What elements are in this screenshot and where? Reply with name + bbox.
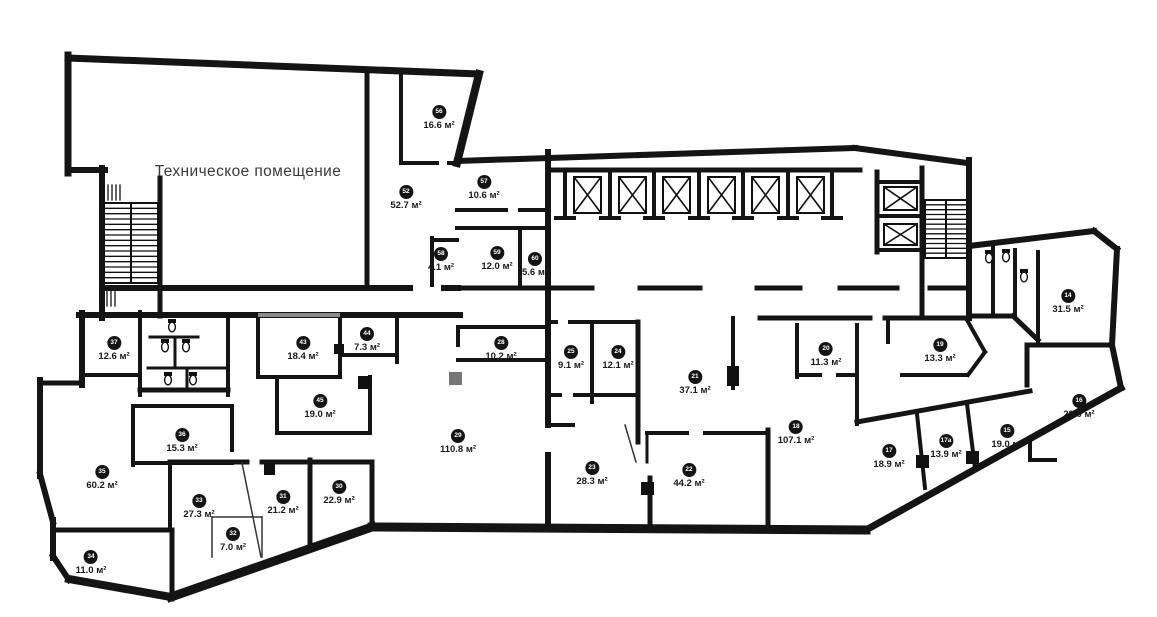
room-marker-29[interactable]: 29 110.8 м² — [440, 429, 476, 455]
room-number: 35 — [95, 465, 109, 479]
room-area: 13.9 м² — [930, 449, 961, 460]
room-area: 31.5 м² — [1052, 304, 1083, 315]
room-marker-20[interactable]: 20 11.3 м² — [811, 342, 842, 368]
room-number: 45 — [313, 394, 327, 408]
room-number: 44 — [360, 327, 374, 341]
elevator-icon — [663, 177, 690, 213]
elevator-icon — [797, 177, 824, 213]
room-number: 16 — [1072, 394, 1086, 408]
room-number: 32 — [226, 527, 240, 541]
staircase-icon — [104, 203, 158, 283]
room-number: 24 — [611, 345, 625, 359]
elevator-icon — [884, 224, 917, 245]
room-area: 7.3 м² — [354, 342, 380, 353]
room-area: 15.3 м² — [166, 443, 197, 454]
room-number: 37 — [107, 336, 121, 350]
room-number: 29 — [451, 429, 465, 443]
room-marker-17a[interactable]: 17а 13.9 м² — [930, 434, 961, 460]
room-area: 12.1 м² — [602, 360, 633, 371]
room-number: 56 — [432, 105, 446, 119]
room-marker-14[interactable]: 14 31.5 м² — [1052, 289, 1083, 315]
room-marker-43[interactable]: 43 18.4 м² — [287, 336, 318, 362]
elevator-shafts — [574, 177, 917, 245]
room-marker-36[interactable]: 36 15.3 м² — [166, 428, 197, 454]
room-area: 5.6 м² — [522, 267, 548, 278]
room-number: 60 — [528, 252, 542, 266]
room-area: 44.2 м² — [673, 478, 704, 489]
room-number: 34 — [84, 550, 98, 564]
room-area: 19.0 м² — [304, 409, 335, 420]
room-marker-18[interactable]: 18 107.1 м² — [778, 420, 815, 446]
wc-icon — [164, 372, 172, 385]
room-area: 18.9 м² — [873, 459, 904, 470]
room-number: 18 — [789, 420, 803, 434]
room-marker-21[interactable]: 21 37.1 м² — [679, 370, 710, 396]
room-number: 31 — [276, 490, 290, 504]
elevator-icon — [708, 177, 735, 213]
room-marker-24[interactable]: 24 12.1 м² — [602, 345, 633, 371]
room-area: 12.0 м² — [481, 261, 512, 272]
room-marker-37[interactable]: 37 12.6 м² — [98, 336, 129, 362]
room-number: 30 — [332, 480, 346, 494]
room-marker-34[interactable]: 34 11.0 м² — [76, 550, 107, 576]
room-area: 13.3 м² — [924, 353, 955, 364]
room-marker-44[interactable]: 44 7.3 м² — [354, 327, 380, 353]
room-area: 28.3 м² — [576, 476, 607, 487]
floor-plan-drawing — [0, 0, 1157, 617]
room-number: 19 — [933, 338, 947, 352]
room-area: 60.2 м² — [86, 480, 117, 491]
room-number: 33 — [192, 494, 206, 508]
room-number: 52 — [399, 185, 413, 199]
room-number: 17а — [939, 434, 953, 448]
room-marker-33[interactable]: 33 27.3 м² — [183, 494, 214, 520]
room-area: 107.1 м² — [778, 435, 815, 446]
elevator-icon — [884, 187, 917, 210]
room-area: 18.4 м² — [287, 351, 318, 362]
room-number: 20 — [819, 342, 833, 356]
room-number: 57 — [477, 175, 491, 189]
wc-icon — [985, 250, 993, 263]
room-number: 23 — [585, 461, 599, 475]
room-area: 22.9 м² — [323, 495, 354, 506]
room-marker-52[interactable]: 52 52.7 м² — [390, 185, 421, 211]
wc-icon — [1002, 249, 1010, 262]
room-area: 4.1 м² — [428, 262, 454, 273]
room-number: 22 — [682, 463, 696, 477]
wc-icon — [189, 372, 197, 385]
room-marker-45[interactable]: 45 19.0 м² — [304, 394, 335, 420]
technical-room-label: Техническое помещение — [155, 161, 342, 183]
room-area: 11.3 м² — [811, 357, 842, 368]
room-area: 52.7 м² — [390, 200, 421, 211]
room-marker-35[interactable]: 35 60.2 м² — [86, 465, 117, 491]
room-marker-30[interactable]: 30 22.9 м² — [323, 480, 354, 506]
room-marker-32[interactable]: 32 7.0 м² — [220, 527, 246, 553]
room-marker-23[interactable]: 23 28.3 м² — [576, 461, 607, 487]
room-area: 29.0 м² — [1063, 409, 1094, 420]
room-marker-60[interactable]: 60 5.6 м² — [522, 252, 548, 278]
wc-icon — [1020, 269, 1028, 282]
room-marker-58[interactable]: 58 4.1 м² — [428, 247, 454, 273]
room-area: 10.2 м² — [485, 351, 516, 362]
room-area: 110.8 м² — [440, 444, 476, 455]
room-area: 16.6 м² — [423, 120, 454, 131]
room-marker-17[interactable]: 17 18.9 м² — [873, 444, 904, 470]
wc-icon — [161, 339, 169, 352]
room-number: 43 — [296, 336, 310, 350]
room-area: 12.6 м² — [98, 351, 129, 362]
room-area: 19.0 м² — [991, 439, 1022, 450]
room-marker-19[interactable]: 19 13.3 м² — [924, 338, 955, 364]
room-area: 11.0 м² — [76, 565, 107, 576]
room-marker-31[interactable]: 31 21.2 м² — [267, 490, 298, 516]
wc-icon — [168, 319, 176, 332]
elevator-icon — [752, 177, 779, 213]
room-number: 58 — [434, 247, 448, 261]
room-number: 25 — [564, 345, 578, 359]
room-number: 17 — [882, 444, 896, 458]
room-number: 21 — [688, 370, 702, 384]
room-marker-15[interactable]: 15 19.0 м² — [991, 424, 1022, 450]
room-number: 36 — [175, 428, 189, 442]
wc-icon — [182, 339, 190, 352]
room-marker-25[interactable]: 25 9.1 м² — [558, 345, 584, 371]
room-number: 59 — [490, 246, 504, 260]
room-marker-56[interactable]: 56 16.6 м² — [423, 105, 454, 131]
room-marker-59[interactable]: 59 12.0 м² — [481, 246, 512, 272]
staircase-icon — [925, 200, 967, 258]
room-number: 28 — [494, 336, 508, 350]
floor-plan: Техническое помещение 56 16.6 м² 52 52.7… — [0, 0, 1157, 617]
room-marker-22[interactable]: 22 44.2 м² — [673, 463, 704, 489]
room-marker-28[interactable]: 28 10.2 м² — [485, 336, 516, 362]
elevator-icon — [619, 177, 646, 213]
room-marker-16[interactable]: 16 29.0 м² — [1063, 394, 1094, 420]
room-number: 14 — [1061, 289, 1075, 303]
room-area: 27.3 м² — [183, 509, 214, 520]
room-marker-57[interactable]: 57 10.6 м² — [468, 175, 499, 201]
room-area: 10.6 м² — [468, 190, 499, 201]
room-area: 7.0 м² — [220, 542, 246, 553]
room-area: 37.1 м² — [679, 385, 710, 396]
room-area: 21.2 м² — [267, 505, 298, 516]
room-number: 15 — [1000, 424, 1014, 438]
room-area: 9.1 м² — [558, 360, 584, 371]
elevator-icon — [574, 177, 601, 213]
